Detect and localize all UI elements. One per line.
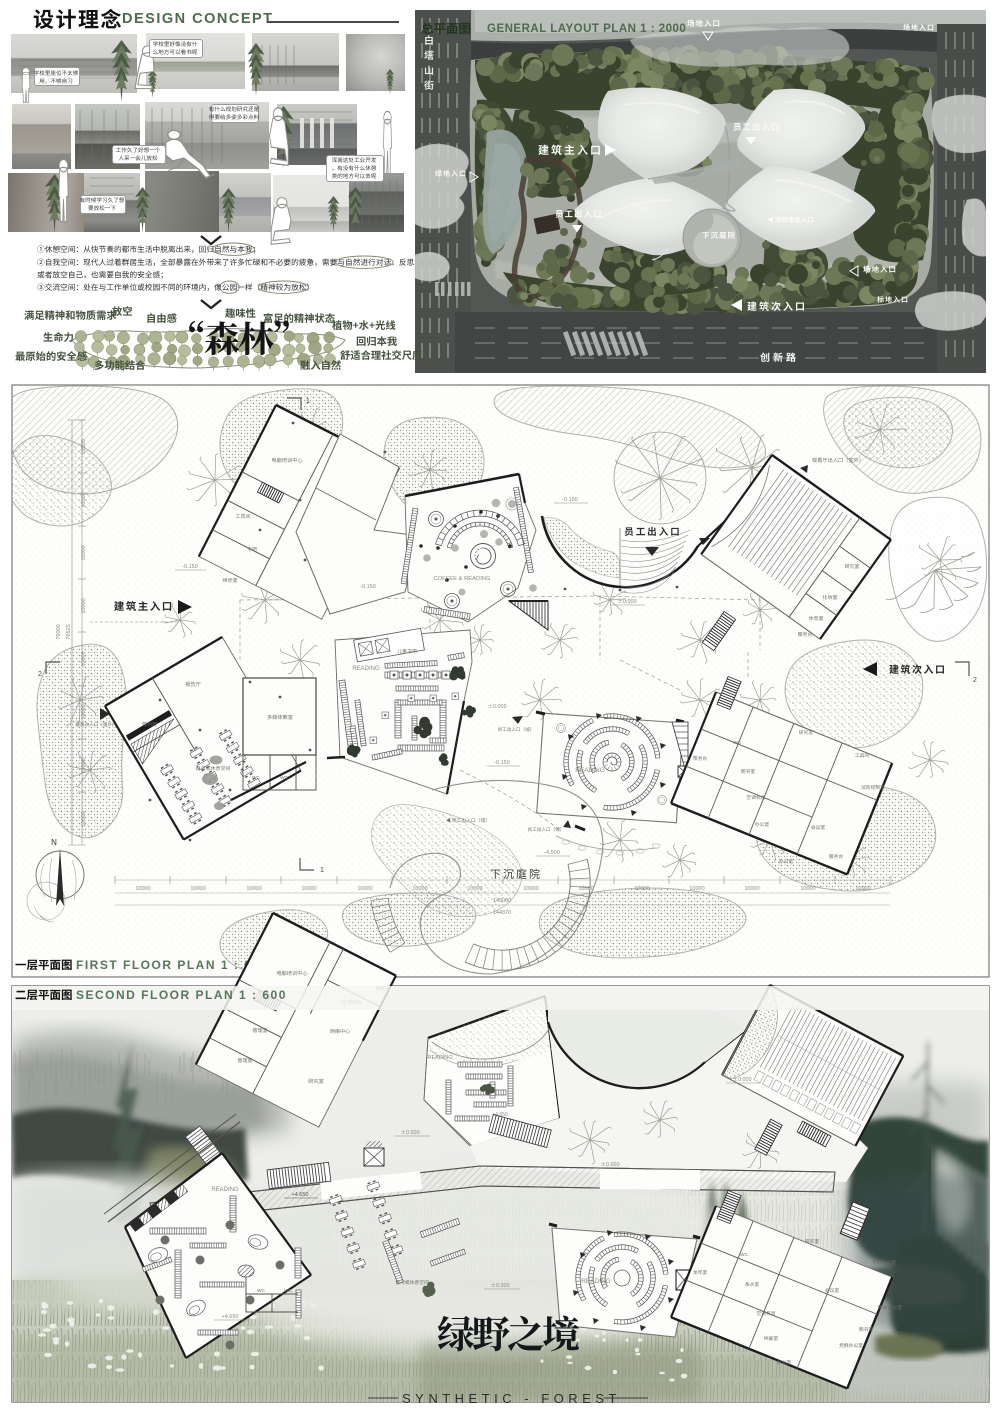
svg-text:10000: 10000: [855, 886, 870, 892]
svg-text:-0.150: -0.150: [182, 564, 198, 570]
svg-text:+4.650: +4.650: [292, 1192, 309, 1198]
svg-text:COFFEE & READING: COFFEE & READING: [433, 576, 491, 582]
svg-text:SECOND FLOOR PLAN 1 : 600: SECOND FLOOR PLAN 1 : 600: [76, 988, 287, 1002]
svg-text:10000: 10000: [800, 886, 815, 892]
svg-text:WC: WC: [252, 775, 261, 781]
svg-text:1: 1: [320, 867, 324, 874]
svg-text:140000: 140000: [493, 898, 511, 904]
svg-text:WC: WC: [740, 1252, 749, 1258]
svg-text:SYNTHETIC - FOREST: SYNTHETIC - FOREST: [402, 1391, 621, 1406]
svg-text:76000: 76000: [56, 624, 62, 639]
svg-text:READING: READING: [211, 1187, 239, 1193]
svg-text:WC: WC: [257, 1288, 266, 1294]
svg-text:-0.150: -0.150: [360, 584, 376, 590]
svg-text:10000: 10000: [467, 886, 482, 892]
svg-text:-0.150: -0.150: [562, 497, 578, 503]
svg-text:10000: 10000: [357, 886, 372, 892]
svg-text:144870: 144870: [493, 910, 511, 916]
svg-text:10000: 10000: [81, 598, 87, 613]
svg-text:-4.500: -4.500: [544, 850, 560, 856]
svg-text:2: 2: [973, 677, 977, 684]
svg-text:READING: READING: [352, 666, 380, 672]
svg-text:10000: 10000: [81, 439, 87, 454]
svg-text:10000: 10000: [81, 704, 87, 719]
svg-text:+4.650: +4.650: [222, 1314, 239, 1320]
svg-text:10000: 10000: [523, 886, 538, 892]
svg-text:READING: READING: [427, 1055, 452, 1061]
svg-text:WC: WC: [284, 1288, 293, 1294]
svg-text:WC: WC: [733, 740, 742, 746]
svg-text:WC: WC: [280, 775, 289, 781]
svg-text:10000: 10000: [634, 886, 649, 892]
svg-text:10000: 10000: [246, 886, 261, 892]
svg-text:10000: 10000: [81, 811, 87, 826]
svg-text:10000: 10000: [81, 492, 87, 507]
svg-text:10000: 10000: [689, 886, 704, 892]
svg-text:READING: READING: [575, 767, 605, 774]
svg-text:10000: 10000: [412, 886, 427, 892]
svg-text:-0.150: -0.150: [494, 760, 510, 766]
svg-text:N: N: [51, 838, 57, 847]
svg-text:FIRST FLOOR PLAN 1 : 600: FIRST FLOOR PLAN 1 : 600: [76, 958, 269, 972]
svg-text:READING: READING: [581, 1278, 611, 1285]
svg-text:10000: 10000: [81, 545, 87, 560]
svg-text:10000: 10000: [81, 758, 87, 773]
svg-text:10000: 10000: [190, 886, 205, 892]
svg-text:10000: 10000: [135, 886, 150, 892]
svg-text:10000: 10000: [81, 651, 87, 666]
svg-text:10000: 10000: [744, 886, 759, 892]
svg-text:76525: 76525: [66, 624, 72, 639]
svg-text:2: 2: [38, 671, 42, 678]
svg-text:10000: 10000: [301, 886, 316, 892]
